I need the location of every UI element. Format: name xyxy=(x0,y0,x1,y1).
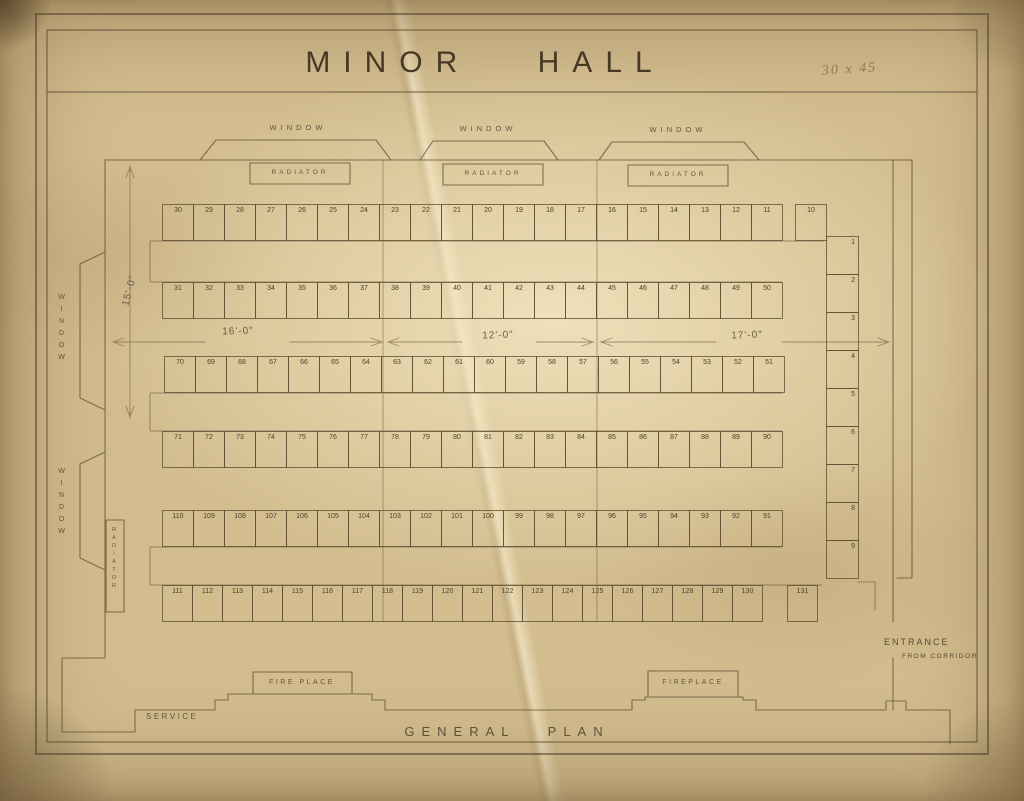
seat-number: 67 xyxy=(269,359,277,366)
seat-number: 89 xyxy=(732,434,740,441)
seat-number: 128 xyxy=(682,588,694,595)
seat-number: 63 xyxy=(393,359,401,366)
seat-number: 54 xyxy=(672,359,680,366)
seat-number: 8 xyxy=(851,505,855,512)
seat-number: 35 xyxy=(298,285,306,292)
seat-cell: 9 xyxy=(826,540,859,579)
seat-number: 82 xyxy=(515,434,523,441)
seat-cell: 51 xyxy=(753,356,785,393)
seat-cell: 32 xyxy=(193,282,225,319)
seat-cell: 73 xyxy=(224,431,256,468)
seat-row-1: 3029282726252423222120191817161514131211… xyxy=(162,204,827,241)
seat-cell: 37 xyxy=(348,282,380,319)
seat-number: 19 xyxy=(515,207,523,214)
seat-cell: 113 xyxy=(222,585,253,622)
seat-cell: 101 xyxy=(441,510,473,547)
seat-cell: 68 xyxy=(226,356,258,393)
seat-cell: 106 xyxy=(286,510,318,547)
seat-number: 55 xyxy=(641,359,649,366)
seat-number: 1 xyxy=(851,239,855,246)
top-window-2-bay xyxy=(420,141,558,160)
seat-number: 36 xyxy=(329,285,337,292)
seat-cell: 59 xyxy=(505,356,537,393)
seat-number: 76 xyxy=(329,434,337,441)
seat-number: 48 xyxy=(701,285,709,292)
seat-cell: 55 xyxy=(629,356,661,393)
seat-number: 23 xyxy=(391,207,399,214)
seat-number: 101 xyxy=(451,513,463,520)
seat-number: 10 xyxy=(807,207,815,214)
seat-cell: 76 xyxy=(317,431,349,468)
seat-number: 31 xyxy=(174,285,182,292)
seat-cell: 88 xyxy=(689,431,721,468)
seat-cell: 79 xyxy=(410,431,442,468)
seat-number: 125 xyxy=(592,588,604,595)
seat-number: 64 xyxy=(362,359,370,366)
seat-cell: 31 xyxy=(162,282,194,319)
right-outer-wall xyxy=(897,160,912,578)
seat-cell: 24 xyxy=(348,204,380,241)
seat-cell: 90 xyxy=(751,431,783,468)
seat-number: 30 xyxy=(174,207,182,214)
seat-number: 3 xyxy=(851,315,855,322)
seat-number: 34 xyxy=(267,285,275,292)
seat-number: 13 xyxy=(701,207,709,214)
seat-cell: 28 xyxy=(224,204,256,241)
seat-cell: 67 xyxy=(257,356,289,393)
seat-number: 57 xyxy=(579,359,587,366)
seat-cell: 25 xyxy=(317,204,349,241)
plan-caption: GENERAL PLAN xyxy=(404,724,609,739)
seat-cell: 10 xyxy=(795,204,827,241)
seat-number: 117 xyxy=(352,588,363,595)
seat-number: 21 xyxy=(453,207,461,214)
radiator-label-left: RADIATOR xyxy=(111,527,117,591)
seat-number: 74 xyxy=(267,434,275,441)
seat-number: 90 xyxy=(763,434,771,441)
seat-cell: 93 xyxy=(689,510,721,547)
seat-number: 75 xyxy=(298,434,306,441)
seat-cell: 42 xyxy=(503,282,535,319)
seat-row-3: 7069686766656463626160595857565554535251 xyxy=(164,356,785,393)
seat-cell: 87 xyxy=(658,431,690,468)
seat-number: 119 xyxy=(412,588,423,595)
seat-cell: 12 xyxy=(720,204,752,241)
seat-cell: 89 xyxy=(720,431,752,468)
seat-cell: 126 xyxy=(612,585,643,622)
seat-number: 131 xyxy=(797,588,809,595)
seat-cell: 109 xyxy=(193,510,225,547)
fireplace-right-label: FIREPLACE xyxy=(662,679,723,686)
seat-cell: 83 xyxy=(534,431,566,468)
window-label-left-1: WINDOW xyxy=(58,294,65,366)
seat-number: 129 xyxy=(712,588,724,595)
seat-cell: 50 xyxy=(751,282,783,319)
seat-number: 56 xyxy=(610,359,618,366)
seat-cell: 62 xyxy=(412,356,444,393)
seat-cell: 46 xyxy=(627,282,659,319)
seat-cell: 114 xyxy=(252,585,283,622)
seat-number: 92 xyxy=(732,513,740,520)
seat-cell: 56 xyxy=(598,356,630,393)
seat-cell: 84 xyxy=(565,431,597,468)
seat-number: 12 xyxy=(732,207,740,214)
entrance-label-line2: FROM CORRIDOR xyxy=(902,653,978,660)
seat-number: 123 xyxy=(532,588,544,595)
window-label-2: WINDOW xyxy=(460,124,517,133)
seat-cell: 122 xyxy=(492,585,523,622)
seat-number: 65 xyxy=(331,359,339,366)
seat-cell: 35 xyxy=(286,282,318,319)
seat-cell: 1 xyxy=(826,236,859,275)
seat-number: 62 xyxy=(424,359,432,366)
seat-cell: 105 xyxy=(317,510,349,547)
seat-cell: 75 xyxy=(286,431,318,468)
seat-cell: 98 xyxy=(534,510,566,547)
seat-number: 100 xyxy=(482,513,494,520)
seat-cell: 72 xyxy=(193,431,225,468)
seat-number: 102 xyxy=(420,513,432,520)
seat-number: 39 xyxy=(422,285,430,292)
seat-number: 32 xyxy=(205,285,213,292)
seat-number: 2 xyxy=(851,277,855,284)
seat-number: 15 xyxy=(639,207,647,214)
seat-row-4: 7172737475767778798081828384858687888990 xyxy=(162,431,783,468)
seat-cell: 41 xyxy=(472,282,504,319)
seat-number: 88 xyxy=(701,434,709,441)
seat-cell: 127 xyxy=(642,585,673,622)
dimension-middle-bay: 12'-0" xyxy=(482,329,514,341)
radiator-label-3: RADIATOR xyxy=(650,171,707,178)
seat-number: 86 xyxy=(639,434,647,441)
side-seat-column: 123456789 xyxy=(826,236,859,579)
seat-cell: 14 xyxy=(658,204,690,241)
seat-cell: 92 xyxy=(720,510,752,547)
seat-number: 22 xyxy=(422,207,430,214)
side-column-step xyxy=(858,582,875,610)
seat-cell: 15 xyxy=(627,204,659,241)
window-label-3: WINDOW xyxy=(650,125,707,134)
seat-number: 40 xyxy=(453,285,461,292)
seat-cell: 7 xyxy=(826,464,859,503)
seat-cell: 43 xyxy=(534,282,566,319)
seat-number: 106 xyxy=(296,513,308,520)
seat-number: 7 xyxy=(851,467,855,474)
seat-cell: 49 xyxy=(720,282,752,319)
top-window-3-bay xyxy=(599,142,759,160)
seat-cell: 131 xyxy=(787,585,818,622)
seat-cell: 120 xyxy=(432,585,463,622)
seat-number: 94 xyxy=(670,513,678,520)
seat-number: 70 xyxy=(176,359,184,366)
seat-cell: 3 xyxy=(826,312,859,351)
seat-number: 95 xyxy=(639,513,647,520)
seat-cell: 69 xyxy=(195,356,227,393)
seat-cell: 96 xyxy=(596,510,628,547)
seat-number: 113 xyxy=(232,588,243,595)
fireplace-left-label: FIRE PLACE xyxy=(269,679,335,686)
seat-row-5: 1101091081071061051041031021011009998979… xyxy=(162,510,783,547)
radiator-label-2: RADIATOR xyxy=(465,170,522,177)
seat-cell: 65 xyxy=(319,356,351,393)
seat-number: 112 xyxy=(202,588,213,595)
seat-number: 114 xyxy=(262,588,273,595)
top-window-1-bay xyxy=(200,140,391,160)
seat-cell: 48 xyxy=(689,282,721,319)
seat-cell: 17 xyxy=(565,204,597,241)
seat-number: 85 xyxy=(608,434,616,441)
seat-cell: 111 xyxy=(162,585,193,622)
seat-number: 17 xyxy=(577,207,585,214)
seat-cell: 112 xyxy=(192,585,223,622)
seat-cell: 38 xyxy=(379,282,411,319)
seat-number: 47 xyxy=(670,285,678,292)
seat-cell: 78 xyxy=(379,431,411,468)
seat-number: 68 xyxy=(238,359,246,366)
seat-cell: 52 xyxy=(722,356,754,393)
seat-number: 126 xyxy=(622,588,634,595)
seat-number: 27 xyxy=(267,207,275,214)
seat-cell: 66 xyxy=(288,356,320,393)
drawing-sheet: MINOR HALL 30 x 45 GENERAL PLAN WINDOW W… xyxy=(0,0,1024,801)
seat-number: 59 xyxy=(517,359,525,366)
seat-number: 52 xyxy=(734,359,742,366)
seat-cell: 23 xyxy=(379,204,411,241)
table-band-2 xyxy=(150,393,782,431)
seat-cell: 19 xyxy=(503,204,535,241)
seat-number: 83 xyxy=(546,434,554,441)
seat-cell: 2 xyxy=(826,274,859,313)
seat-cell: 8 xyxy=(826,502,859,541)
seat-number: 109 xyxy=(203,513,215,520)
seat-cell: 64 xyxy=(350,356,382,393)
window-label-1: WINDOW xyxy=(270,123,327,132)
seat-number: 91 xyxy=(763,513,771,520)
seat-number: 42 xyxy=(515,285,523,292)
seat-number: 60 xyxy=(486,359,494,366)
seat-number: 120 xyxy=(442,588,454,595)
seat-number: 33 xyxy=(236,285,244,292)
seat-cell: 104 xyxy=(348,510,380,547)
seat-cell: 29 xyxy=(193,204,225,241)
seat-cell: 100 xyxy=(472,510,504,547)
seat-number: 6 xyxy=(851,429,855,436)
seat-number: 5 xyxy=(851,391,855,398)
seat-cell: 74 xyxy=(255,431,287,468)
left-window-1-bay xyxy=(80,252,105,410)
seat-number: 58 xyxy=(548,359,556,366)
seat-cell: 47 xyxy=(658,282,690,319)
seat-cell: 45 xyxy=(596,282,628,319)
seat-number: 26 xyxy=(298,207,306,214)
seat-cell: 4 xyxy=(826,350,859,389)
seat-cell: 124 xyxy=(552,585,583,622)
seat-number: 18 xyxy=(546,207,554,214)
seat-cell: 22 xyxy=(410,204,442,241)
seat-number: 4 xyxy=(851,353,855,360)
seat-number: 24 xyxy=(360,207,368,214)
seat-number: 37 xyxy=(360,285,368,292)
scale-note: 30 x 45 xyxy=(822,60,878,80)
seat-number: 121 xyxy=(472,588,484,595)
seat-number: 77 xyxy=(360,434,368,441)
seat-row-2: 3132333435363738394041424344454647484950 xyxy=(162,282,783,319)
seat-cell: 85 xyxy=(596,431,628,468)
seat-number: 72 xyxy=(205,434,213,441)
seat-cell: 11 xyxy=(751,204,783,241)
seat-cell: 107 xyxy=(255,510,287,547)
seat-number: 11 xyxy=(763,207,770,214)
seat-number: 20 xyxy=(484,207,492,214)
radiator-label-1: RADIATOR xyxy=(272,169,329,176)
service-label: SERVICE xyxy=(146,712,198,721)
seat-number: 66 xyxy=(300,359,308,366)
seat-cell: 16 xyxy=(596,204,628,241)
left-window-2-bay xyxy=(80,452,105,570)
seat-number: 104 xyxy=(358,513,370,520)
seat-number: 108 xyxy=(234,513,246,520)
seat-cell: 57 xyxy=(567,356,599,393)
seat-cell: 27 xyxy=(255,204,287,241)
seat-cell: 44 xyxy=(565,282,597,319)
seat-cell: 102 xyxy=(410,510,442,547)
seat-number: 80 xyxy=(453,434,461,441)
seat-number: 103 xyxy=(389,513,401,520)
dimension-right-bay: 17'-0" xyxy=(731,329,763,341)
seat-number: 110 xyxy=(172,513,183,520)
seat-number: 79 xyxy=(422,434,430,441)
seat-cell: 13 xyxy=(689,204,721,241)
seat-cell: 61 xyxy=(443,356,475,393)
seat-cell: 20 xyxy=(472,204,504,241)
seat-number: 29 xyxy=(205,207,213,214)
seat-number: 81 xyxy=(484,434,492,441)
seat-number: 46 xyxy=(639,285,647,292)
seat-cell: 91 xyxy=(751,510,783,547)
window-label-left-2: WINDOW xyxy=(58,468,65,540)
seat-number: 130 xyxy=(742,588,754,595)
seat-cell: 97 xyxy=(565,510,597,547)
seat-number: 115 xyxy=(292,588,303,595)
table-band-1 xyxy=(150,241,824,282)
seat-number: 38 xyxy=(391,285,399,292)
seat-cell: 39 xyxy=(410,282,442,319)
seat-number: 96 xyxy=(608,513,616,520)
dimension-vertical: 15'-0" xyxy=(120,274,139,307)
seat-cell: 108 xyxy=(224,510,256,547)
plan-linework xyxy=(0,0,1024,801)
seat-number: 99 xyxy=(515,513,523,520)
seat-cell: 125 xyxy=(582,585,613,622)
seat-number: 118 xyxy=(382,588,393,595)
seat-cell: 129 xyxy=(702,585,733,622)
seat-number: 49 xyxy=(732,285,740,292)
seat-number: 111 xyxy=(172,588,183,595)
seat-number: 71 xyxy=(174,434,182,441)
seat-cell: 6 xyxy=(826,426,859,465)
seat-number: 41 xyxy=(484,285,492,292)
seat-cell: 123 xyxy=(522,585,553,622)
seat-number: 78 xyxy=(391,434,399,441)
seat-number: 97 xyxy=(577,513,585,520)
seat-cell: 115 xyxy=(282,585,313,622)
seat-number: 25 xyxy=(329,207,337,214)
seat-number: 9 xyxy=(851,543,855,550)
seat-cell: 116 xyxy=(312,585,343,622)
seat-number: 127 xyxy=(652,588,664,595)
seat-number: 43 xyxy=(546,285,554,292)
seat-cell: 30 xyxy=(162,204,194,241)
seat-number: 44 xyxy=(577,285,585,292)
seat-number: 53 xyxy=(703,359,711,366)
seat-number: 28 xyxy=(236,207,244,214)
seat-number: 45 xyxy=(608,285,616,292)
seat-cell: 128 xyxy=(672,585,703,622)
seat-cell: 36 xyxy=(317,282,349,319)
seat-number: 16 xyxy=(608,207,616,214)
seat-number: 105 xyxy=(327,513,339,520)
seat-number: 93 xyxy=(701,513,709,520)
seat-number: 107 xyxy=(265,513,277,520)
seat-number: 87 xyxy=(670,434,678,441)
seat-cell: 34 xyxy=(255,282,287,319)
seat-cell: 82 xyxy=(503,431,535,468)
seat-number: 84 xyxy=(577,434,585,441)
seat-cell: 63 xyxy=(381,356,413,393)
seat-number: 73 xyxy=(236,434,244,441)
seat-cell: 54 xyxy=(660,356,692,393)
dimension-left-bay: 16'-0" xyxy=(222,325,254,337)
seat-number: 51 xyxy=(765,359,773,366)
seat-cell: 103 xyxy=(379,510,411,547)
seat-cell: 58 xyxy=(536,356,568,393)
seat-cell: 119 xyxy=(402,585,433,622)
seat-cell: 5 xyxy=(826,388,859,427)
seat-cell: 99 xyxy=(503,510,535,547)
seat-number: 69 xyxy=(207,359,215,366)
table-band-3 xyxy=(150,547,822,585)
seat-cell: 21 xyxy=(441,204,473,241)
seat-cell: 81 xyxy=(472,431,504,468)
seat-cell: 110 xyxy=(162,510,194,547)
seat-number: 124 xyxy=(562,588,574,595)
seat-cell: 40 xyxy=(441,282,473,319)
seat-cell: 121 xyxy=(462,585,493,622)
seat-cell: 71 xyxy=(162,431,194,468)
seat-number: 98 xyxy=(546,513,554,520)
seat-number: 122 xyxy=(502,588,514,595)
seat-cell: 53 xyxy=(691,356,723,393)
entrance-label-line1: ENTRANCE xyxy=(884,637,950,647)
seat-cell: 70 xyxy=(164,356,196,393)
seat-cell: 33 xyxy=(224,282,256,319)
seat-cell: 95 xyxy=(627,510,659,547)
seat-cell: 118 xyxy=(372,585,403,622)
seat-row-6: 1111121131141151161171181191201211221231… xyxy=(162,585,818,622)
seat-number: 116 xyxy=(322,588,333,595)
seat-number: 14 xyxy=(670,207,678,214)
seat-cell: 117 xyxy=(342,585,373,622)
seat-cell: 94 xyxy=(658,510,690,547)
seat-cell: 18 xyxy=(534,204,566,241)
seat-number: 61 xyxy=(455,359,463,366)
seat-cell: 86 xyxy=(627,431,659,468)
seat-cell: 60 xyxy=(474,356,506,393)
seat-cell: 26 xyxy=(286,204,318,241)
sheet-title: MINOR HALL xyxy=(305,46,664,80)
seat-cell: 130 xyxy=(732,585,763,622)
seat-number: 50 xyxy=(763,285,771,292)
